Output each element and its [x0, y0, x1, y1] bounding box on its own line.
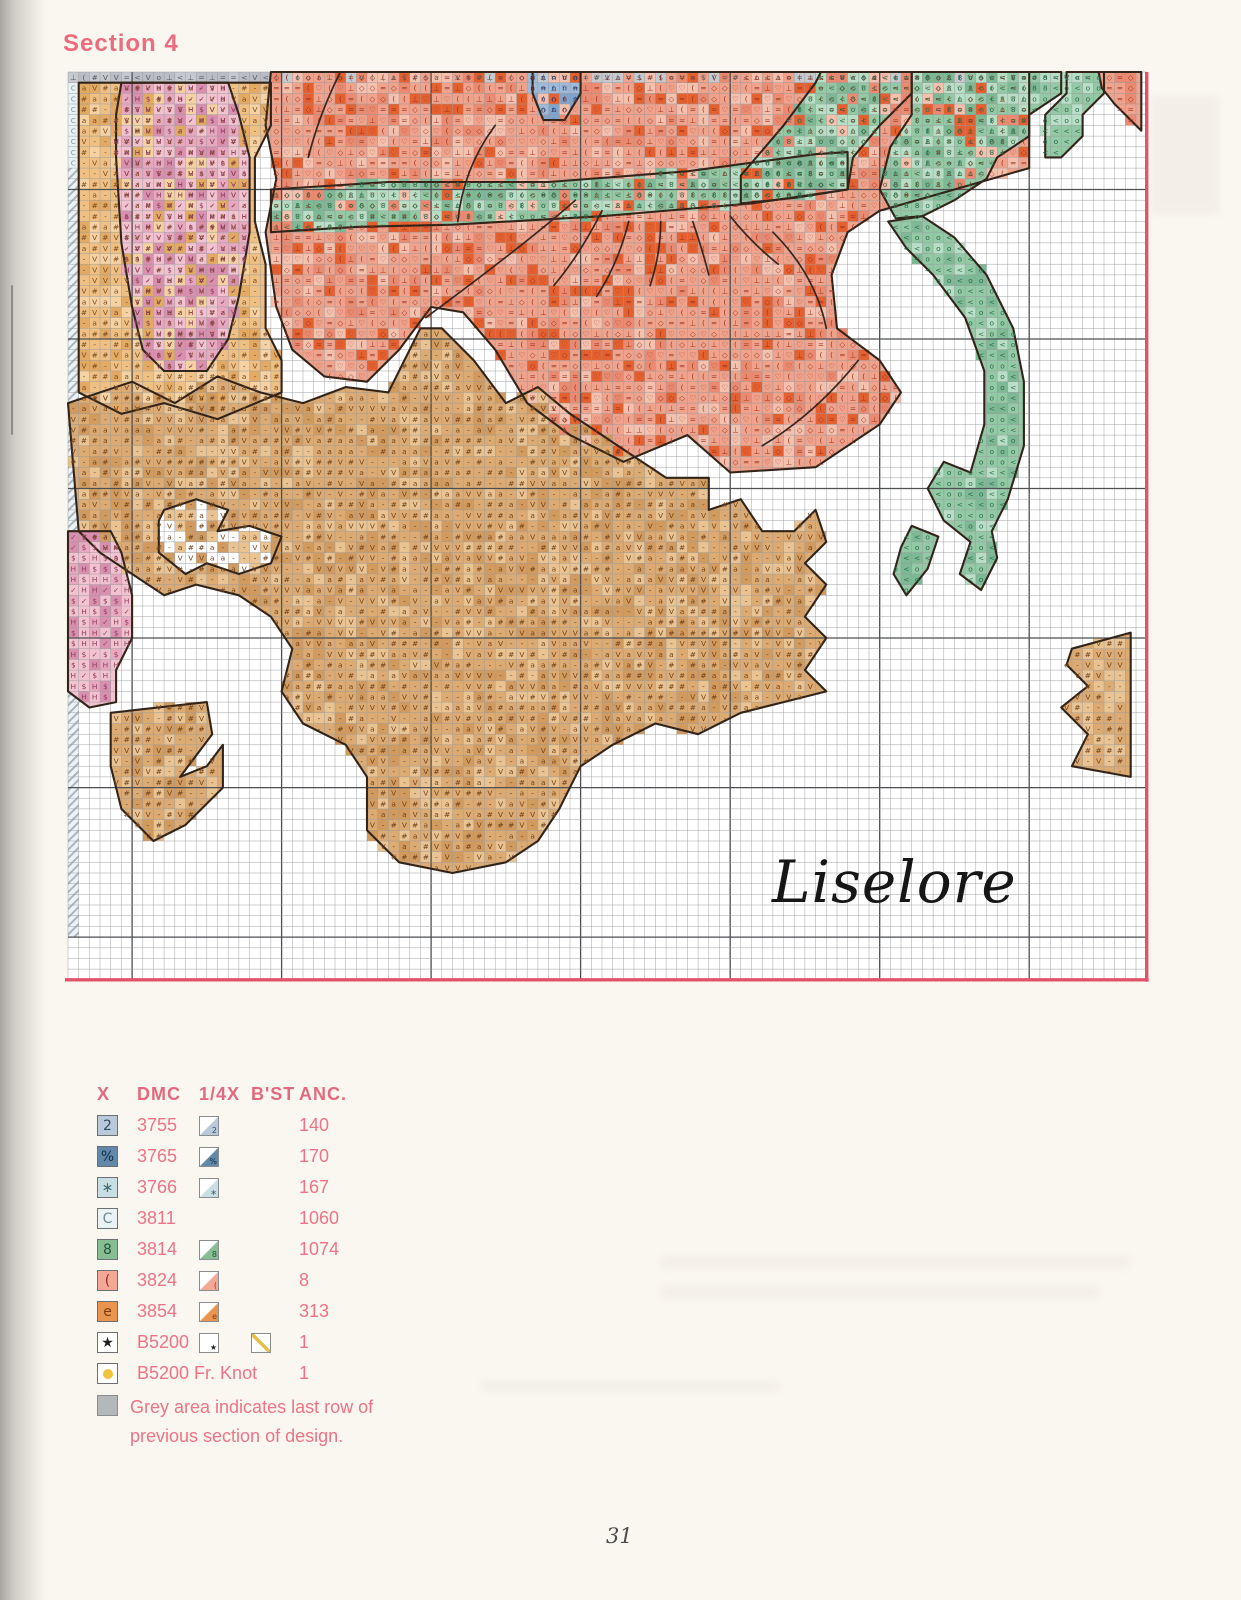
svg-text:♡: ♡ [380, 137, 387, 146]
svg-text:♡: ♡ [679, 159, 686, 168]
svg-text:$: $ [178, 233, 183, 242]
svg-text:$: $ [199, 169, 204, 178]
svg-text:♡: ♡ [882, 137, 889, 146]
svg-text:(: ( [638, 126, 641, 135]
svg-text:=: = [871, 169, 877, 178]
svg-text:V: V [167, 180, 172, 189]
svg-text:(: ( [723, 94, 726, 103]
svg-text:V: V [103, 265, 108, 274]
svg-text:♡: ♡ [433, 255, 440, 264]
svg-text:◇: ◇ [615, 159, 621, 168]
svg-text:◇: ◇ [722, 84, 728, 93]
svg-text:⊥: ⊥ [401, 276, 407, 285]
grey-note-line2: previous section of design. [130, 1422, 373, 1451]
svg-text:V: V [252, 94, 257, 103]
svg-text:=: = [455, 297, 461, 306]
svg-text:(: ( [478, 84, 481, 93]
svg-text:V: V [242, 116, 247, 125]
svg-text:$: $ [167, 351, 172, 360]
legend-row: 8381481074 [97, 1234, 457, 1265]
svg-text:♡: ♡ [647, 287, 654, 296]
svg-text:✓: ✓ [124, 244, 130, 253]
svg-text:a: a [178, 383, 183, 392]
svg-text:◇: ◇ [637, 169, 643, 178]
svg-text:◇: ◇ [871, 191, 877, 200]
svg-text:♡: ♡ [337, 276, 344, 285]
svg-text:V: V [263, 105, 268, 114]
svg-text:◇: ◇ [412, 116, 418, 125]
svg-text:⊥: ⊥ [390, 73, 396, 82]
svg-text:=: = [850, 169, 856, 178]
svg-text:(: ( [659, 148, 662, 157]
svg-text:=: = [594, 116, 600, 125]
svg-text:#: # [241, 84, 247, 93]
svg-text:♡: ♡ [380, 169, 387, 178]
svg-text:✓: ✓ [177, 340, 183, 349]
svg-text:◇: ◇ [487, 287, 493, 296]
svg-text:=: = [497, 73, 503, 82]
svg-text:⊥: ⊥ [871, 159, 877, 168]
svg-text:⊥: ⊥ [390, 308, 396, 317]
svg-text:-: - [243, 287, 246, 296]
svg-text:=: = [465, 105, 471, 114]
svg-text:⊥: ⊥ [572, 126, 578, 135]
svg-text:-: - [264, 94, 267, 103]
svg-text:(: ( [713, 126, 716, 135]
svg-text:(: ( [574, 287, 577, 296]
svg-text:=: = [615, 265, 621, 274]
svg-text:⊥: ⊥ [380, 265, 386, 274]
svg-text:H: H [145, 308, 151, 317]
svg-text:(: ( [531, 244, 534, 253]
grey-area-note: Grey area indicates last row of previous… [97, 1393, 457, 1451]
svg-text:(: ( [542, 126, 545, 135]
svg-text:=: = [412, 137, 418, 146]
svg-text:=: = [423, 255, 429, 264]
svg-text:♡: ♡ [828, 201, 835, 210]
svg-text:♡: ♡ [465, 116, 472, 125]
svg-text:(: ( [542, 169, 545, 178]
svg-text:⊥: ⊥ [390, 233, 396, 242]
svg-text:a: a [92, 191, 97, 200]
svg-text:=: = [583, 126, 589, 135]
svg-text:⊥: ⊥ [476, 94, 482, 103]
svg-text:H: H [156, 126, 162, 135]
svg-text:V: V [156, 148, 161, 157]
svg-text:◇: ◇ [519, 73, 525, 82]
svg-text:♡: ♡ [743, 276, 750, 285]
svg-text:=: = [316, 159, 322, 168]
svg-text:V: V [114, 73, 119, 82]
svg-text:#: # [262, 351, 268, 360]
svg-text:(: ( [585, 287, 588, 296]
svg-text:-: - [83, 169, 86, 178]
svg-text:✓: ✓ [134, 169, 140, 178]
svg-text:V: V [103, 287, 108, 296]
svg-text:=: = [615, 169, 621, 178]
svg-text:$: $ [188, 223, 193, 232]
svg-text:(: ( [446, 287, 449, 296]
svg-text:=: = [327, 126, 333, 135]
svg-text:=: = [594, 84, 600, 93]
svg-text:⊥: ⊥ [337, 159, 343, 168]
svg-text:=: = [594, 276, 600, 285]
svg-text:✓: ✓ [198, 223, 204, 232]
svg-text:♡: ♡ [796, 297, 803, 306]
svg-text:H: H [156, 308, 162, 317]
svg-text:⊥: ⊥ [764, 73, 770, 82]
svg-text:$: $ [135, 84, 140, 93]
svg-text:◇: ◇ [359, 148, 365, 157]
svg-text:♡: ♡ [508, 137, 515, 146]
svg-text:◇: ◇ [669, 126, 675, 135]
svg-text:H: H [199, 319, 205, 328]
svg-text:⊥: ⊥ [743, 223, 749, 232]
svg-text:(: ( [531, 297, 534, 306]
svg-text:(: ( [809, 265, 812, 274]
svg-text:(: ( [510, 84, 513, 93]
svg-text:✓: ✓ [220, 233, 226, 242]
svg-text:⊥: ⊥ [700, 148, 706, 157]
svg-text:=: = [348, 73, 354, 82]
svg-text:H: H [145, 287, 151, 296]
svg-text:=: = [796, 84, 802, 93]
svg-text:$: $ [188, 340, 193, 349]
svg-text:⊥: ⊥ [529, 105, 535, 114]
svg-text:=: = [497, 84, 503, 93]
svg-text:=: = [273, 148, 279, 157]
svg-text:=: = [508, 148, 514, 157]
svg-text:V: V [242, 180, 247, 189]
svg-text:$: $ [167, 84, 172, 93]
svg-text:H: H [177, 180, 183, 189]
svg-text:H: H [188, 255, 194, 264]
svg-text:(: ( [285, 169, 288, 178]
svg-text:⊥: ⊥ [487, 159, 493, 168]
svg-text:(: ( [307, 297, 310, 306]
svg-text:=: = [732, 201, 738, 210]
svg-text:⊥: ⊥ [786, 297, 792, 306]
svg-text:✓: ✓ [209, 351, 215, 360]
svg-text:◇: ◇ [412, 297, 418, 306]
svg-text:a: a [114, 308, 119, 317]
svg-text:#: # [102, 319, 108, 328]
svg-text:V: V [103, 244, 108, 253]
svg-text:♡: ♡ [401, 73, 408, 82]
svg-text:(: ( [702, 287, 705, 296]
svg-text:(: ( [585, 148, 588, 157]
svg-text:♡: ♡ [284, 148, 291, 157]
svg-text:$: $ [242, 244, 247, 253]
svg-text:(: ( [670, 287, 673, 296]
svg-text:=: = [444, 73, 450, 82]
svg-text:=: = [230, 73, 236, 82]
svg-text:(: ( [702, 126, 705, 135]
svg-text:♡: ♡ [561, 223, 568, 232]
svg-text:H: H [199, 287, 205, 296]
svg-text:✓: ✓ [230, 287, 236, 296]
anchor-code: 167 [299, 1177, 457, 1198]
svg-text:$: $ [199, 201, 204, 210]
svg-text:⊥: ⊥ [316, 265, 322, 274]
svg-text:♡: ♡ [497, 126, 504, 135]
svg-text:$: $ [135, 276, 140, 285]
svg-text:♡: ♡ [487, 148, 494, 157]
svg-text:#: # [113, 169, 119, 178]
svg-text:=: = [551, 223, 557, 232]
svg-text:(: ( [435, 244, 438, 253]
svg-text:♡: ♡ [348, 137, 355, 146]
svg-text:=: = [391, 116, 397, 125]
svg-text:◇: ◇ [604, 244, 610, 253]
svg-text:#: # [241, 265, 247, 274]
svg-text:$: $ [167, 126, 172, 135]
svg-text:H: H [177, 319, 183, 328]
grey-note-text: Grey area indicates last row of previous… [130, 1393, 373, 1451]
svg-text:(: ( [424, 84, 427, 93]
svg-text:⊥: ⊥ [294, 169, 300, 178]
svg-text:♡: ♡ [657, 287, 664, 296]
svg-text:$: $ [156, 169, 161, 178]
svg-text:⊥: ⊥ [754, 73, 760, 82]
svg-text:◇: ◇ [380, 94, 386, 103]
svg-text:V: V [81, 351, 86, 360]
svg-text:◇: ◇ [775, 212, 781, 221]
svg-text:⊥: ⊥ [455, 84, 461, 93]
svg-text:⊥: ⊥ [444, 265, 450, 274]
svg-text:(: ( [585, 73, 588, 82]
svg-text:♡: ♡ [721, 148, 728, 157]
svg-text:a: a [253, 265, 258, 274]
svg-text:a: a [231, 351, 236, 360]
svg-text:-: - [93, 148, 96, 157]
svg-text:(: ( [777, 297, 780, 306]
svg-text:⊥: ⊥ [508, 94, 514, 103]
svg-text:♡: ♡ [390, 148, 397, 157]
svg-text:H: H [188, 212, 194, 221]
svg-text:=: = [369, 159, 375, 168]
svg-text:⊥: ⊥ [358, 126, 364, 135]
svg-text:=: = [668, 223, 674, 232]
svg-text:♡: ♡ [487, 276, 494, 285]
svg-text:-: - [232, 84, 235, 93]
svg-text:◇: ◇ [647, 233, 653, 242]
svg-text:=: = [743, 116, 749, 125]
svg-text:⊥: ⊥ [188, 73, 194, 82]
svg-text:$: $ [146, 169, 151, 178]
svg-text:♡: ♡ [444, 94, 451, 103]
svg-text:a: a [82, 383, 87, 392]
svg-text:⊥: ⊥ [722, 255, 728, 264]
svg-text:a: a [253, 340, 258, 349]
svg-text:V: V [210, 233, 215, 242]
svg-text:♡: ♡ [818, 212, 825, 221]
svg-text:H: H [177, 191, 183, 200]
svg-text:=: = [476, 244, 482, 253]
svg-text:(: ( [755, 137, 758, 146]
svg-text:⊥: ⊥ [561, 297, 567, 306]
svg-text:(: ( [360, 255, 363, 264]
quarter-stitch-swatch: ( [199, 1271, 219, 1291]
svg-text:◇: ◇ [305, 105, 311, 114]
svg-text:=: = [412, 233, 418, 242]
svg-text:♡: ♡ [476, 265, 483, 274]
svg-text:♡: ♡ [358, 244, 365, 253]
svg-text:=: = [369, 223, 375, 232]
svg-text:$: $ [199, 105, 204, 114]
svg-text:◇: ◇ [508, 116, 514, 125]
svg-text:#: # [92, 244, 98, 253]
svg-text:(: ( [520, 159, 523, 168]
svg-text:◇: ◇ [487, 105, 493, 114]
svg-text:$: $ [210, 329, 215, 338]
svg-text:(: ( [830, 276, 833, 285]
svg-text:(: ( [884, 148, 887, 157]
svg-text:◇: ◇ [476, 159, 482, 168]
svg-text:H: H [188, 297, 194, 306]
svg-text:a: a [242, 126, 247, 135]
svg-text:◇: ◇ [861, 191, 867, 200]
svg-text:=: = [423, 287, 429, 296]
svg-text:✓: ✓ [145, 244, 151, 253]
svg-text:(: ( [702, 233, 705, 242]
svg-text:=: = [636, 212, 642, 221]
svg-text:(: ( [382, 126, 385, 135]
svg-text:♡: ♡ [775, 201, 782, 210]
svg-text:=: = [508, 105, 514, 114]
svg-text:=: = [903, 105, 909, 114]
svg-text:V: V [220, 319, 225, 328]
svg-text:$: $ [188, 287, 193, 296]
svg-text:H: H [220, 255, 226, 264]
svg-text:C: C [71, 159, 76, 168]
svg-text:♡: ♡ [700, 73, 707, 82]
svg-text:=: = [583, 105, 589, 114]
svg-text:⊥: ⊥ [348, 148, 354, 157]
svg-text:⊥: ⊥ [636, 73, 642, 82]
svg-text:a: a [221, 361, 226, 370]
svg-text:◇: ◇ [701, 276, 707, 285]
svg-text:=: = [327, 244, 333, 253]
svg-text:-: - [83, 201, 86, 210]
svg-text:⊥: ⊥ [497, 276, 503, 285]
quarter-stitch-swatch: 8 [199, 1240, 219, 1260]
svg-text:⊥: ⊥ [497, 94, 503, 103]
svg-text:V: V [156, 361, 161, 370]
svg-text:-: - [93, 169, 96, 178]
anchor-code: 1060 [299, 1208, 457, 1229]
svg-text:=: = [401, 297, 407, 306]
svg-text:=: = [615, 223, 621, 232]
svg-text:a: a [114, 319, 119, 328]
svg-text:-: - [104, 137, 107, 146]
svg-text:a: a [92, 319, 97, 328]
svg-text:◇: ◇ [337, 148, 343, 157]
svg-text:♡: ♡ [487, 244, 494, 253]
svg-text:(: ( [617, 233, 620, 242]
svg-text:♡: ♡ [433, 73, 440, 82]
svg-text:⊥: ⊥ [412, 94, 418, 103]
svg-text:✓: ✓ [220, 297, 226, 306]
svg-text:⊥: ⊥ [647, 212, 653, 221]
svg-text:#: # [102, 351, 108, 360]
svg-text:=: = [679, 212, 685, 221]
svg-text:♡: ♡ [487, 233, 494, 242]
svg-text:(: ( [488, 84, 491, 93]
svg-text:$: $ [167, 148, 172, 157]
svg-text:V: V [231, 361, 236, 370]
svg-text:⊥: ⊥ [690, 212, 696, 221]
svg-text:♡: ♡ [593, 73, 600, 82]
svg-text:<: < [134, 73, 140, 82]
svg-text:H: H [177, 287, 183, 296]
svg-text:◇: ◇ [519, 116, 525, 125]
svg-text:♡: ♡ [828, 255, 835, 264]
svg-text:a: a [114, 329, 119, 338]
svg-text:♡: ♡ [369, 244, 376, 253]
svg-text:$: $ [221, 159, 226, 168]
svg-text:a: a [103, 297, 108, 306]
svg-text:H: H [220, 84, 226, 93]
svg-text:V: V [114, 361, 119, 370]
svg-text:=: = [540, 159, 546, 168]
svg-text:♡: ♡ [764, 137, 771, 146]
svg-text:H: H [177, 212, 183, 221]
svg-text:♡: ♡ [818, 191, 825, 200]
svg-text:=: = [732, 126, 738, 135]
svg-text:(: ( [627, 116, 630, 125]
svg-text:♡: ♡ [679, 297, 686, 306]
svg-text:♡: ♡ [786, 276, 793, 285]
svg-text:#: # [113, 94, 119, 103]
svg-text:♡: ♡ [326, 308, 333, 317]
svg-text:(: ( [713, 159, 716, 168]
svg-text:◇: ◇ [359, 169, 365, 178]
svg-text:H: H [145, 105, 151, 114]
svg-text:H: H [167, 201, 173, 210]
svg-text:=: = [754, 148, 760, 157]
svg-text:◇: ◇ [583, 159, 589, 168]
svg-text:(: ( [307, 180, 310, 189]
svg-text:#: # [102, 372, 108, 381]
svg-text:V: V [252, 308, 257, 317]
svg-text:V: V [178, 255, 183, 264]
svg-text:◇: ◇ [423, 159, 429, 168]
svg-text:V: V [178, 116, 183, 125]
svg-text:-: - [83, 319, 86, 328]
svg-text:(: ( [392, 94, 395, 103]
svg-text:♡: ♡ [882, 201, 889, 210]
svg-text:◇: ◇ [476, 255, 482, 264]
svg-text:H: H [124, 265, 130, 274]
svg-text:♡: ♡ [284, 244, 291, 253]
svg-text:◇: ◇ [765, 297, 771, 306]
svg-text:=: = [754, 94, 760, 103]
svg-text:♡: ♡ [764, 233, 771, 242]
svg-text:♡: ♡ [529, 265, 536, 274]
svg-text:V: V [103, 308, 108, 317]
dmc-code: 3814 [137, 1239, 199, 1260]
svg-text:H: H [167, 159, 173, 168]
svg-text:(: ( [382, 244, 385, 253]
svg-text:(: ( [627, 84, 630, 93]
svg-text:(: ( [467, 265, 470, 274]
svg-text:V: V [124, 137, 129, 146]
svg-text:a: a [82, 329, 87, 338]
svg-text:=: = [359, 137, 365, 146]
svg-text:$: $ [231, 212, 236, 221]
svg-text:=: = [305, 233, 311, 242]
